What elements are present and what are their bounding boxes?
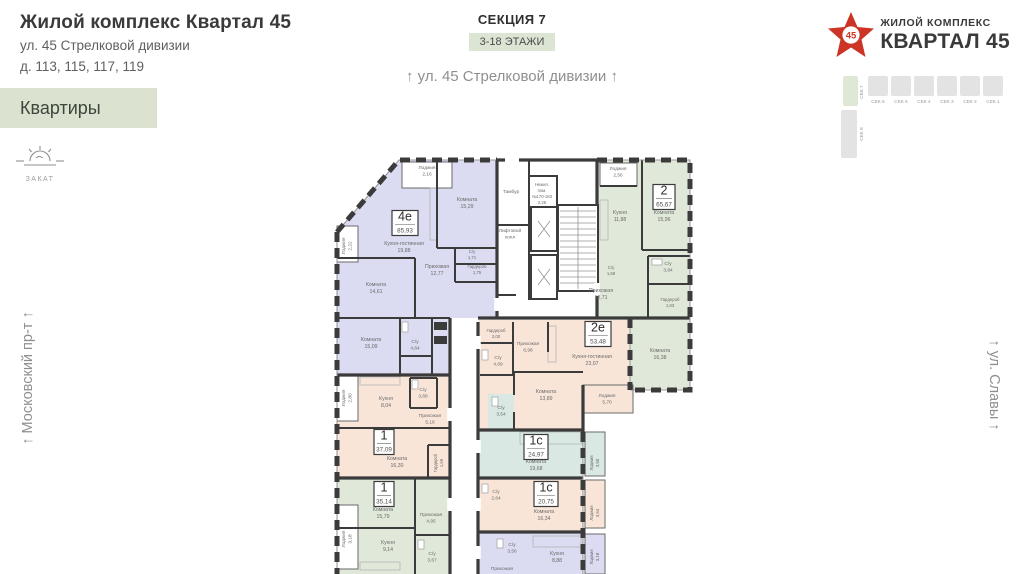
sunset-widget: ЗАКАТ [14,140,66,183]
minimap-section-current-label: СЕК 7 [859,85,865,99]
svg-text:65,67: 65,67 [656,202,672,209]
room-label: Кухня8,88 [550,551,564,564]
tab-flats[interactable]: Квартиры [0,88,157,128]
elevator-shaft [531,207,557,251]
svg-text:1: 1 [381,481,388,495]
room-label: Прихожая [491,566,514,572]
minimap-section[interactable]: СЕК 6 [868,76,888,105]
section-title: СЕКЦИЯ 7 [377,12,647,27]
logo-star-number: 45 [846,31,857,42]
svg-text:1с: 1с [529,434,542,448]
minimap-section-label: СЕК 1 [986,99,1000,105]
apartment-badge[interactable]: 135,14 [374,481,394,507]
tab-flats-label: Квартиры [20,98,101,119]
svg-text:2: 2 [661,184,668,198]
apartment-region-1s-20[interactable] [478,478,583,532]
floors-badge: 3-18 ЭТАЖИ [469,33,556,51]
svg-text:85,93: 85,93 [397,228,413,235]
svg-text:37,09: 37,09 [376,447,392,454]
svg-text:20,75: 20,75 [538,499,554,506]
minimap-section-label: СЕК 8 [859,127,865,141]
page-title: Жилой комплекс Квартал 45 [20,12,291,34]
svg-text:2е: 2е [591,321,605,335]
svg-text:4е: 4е [398,210,412,224]
room-label: Лифтовойхолл [499,227,522,241]
svg-text:35,14: 35,14 [376,499,392,506]
minimap-section-label: СЕК 4 [917,99,931,105]
section-header: СЕКЦИЯ 7 3-18 ЭТАЖИ [377,12,647,51]
apartment-badge[interactable]: 1с20,75 [534,481,558,507]
sunset-label: ЗАКАТ [14,176,66,183]
floorplan: Лоджия2,16Лоджия2,22Комната15,29Кухня-го… [330,150,710,574]
minimap-section-current[interactable]: СЕК 7 [843,76,865,106]
sunset-icon [14,140,66,170]
staircase [558,205,598,291]
minimap-section-label: СЕК 5 [894,99,908,105]
address-line-1: ул. 45 Стрелковой дивизии [20,37,291,55]
room-label: Тамбур [503,189,520,195]
logo[interactable]: 45 ЖИЛОЙ КОМПЛЕКС КВАРТАЛ 45 [826,10,1010,60]
minimap-section[interactable]: СЕК 8 [841,110,865,158]
logo-line1: ЖИЛОЙ КОМПЛЕКС [880,17,1010,29]
minimap-section[interactable]: СЕК 1 [983,76,1003,105]
svg-text:1с: 1с [539,481,552,495]
apartment-badge[interactable]: 1с24,97 [524,434,548,460]
room-label: Кухня11,88 [613,210,627,223]
minimap-section-label: СЕК 2 [963,99,977,105]
logo-line2: КВАРТАЛ 45 [880,30,1010,54]
room-label: Кухня8,04 [379,396,393,409]
apartment-badge[interactable]: 2е53,48 [585,321,611,347]
minimap-section[interactable]: СЕК 5 [891,76,911,105]
address-line-2: д. 113, 115, 117, 119 [20,58,291,76]
brand-block: Жилой комплекс Квартал 45 ул. 45 Стрелко… [20,12,291,75]
svg-text:24,97: 24,97 [528,452,544,459]
minimap-section[interactable]: СЕК 2 [960,76,980,105]
svg-text:53,48: 53,48 [590,339,606,346]
room-label: Кухня9,14 [381,540,395,553]
street-label-left: ↑ Московский пр-т ↑ [20,311,36,444]
minimap-section-label: СЕК 3 [940,99,954,105]
page: Жилой комплекс Квартал 45 ул. 45 Стрелко… [0,0,1024,574]
street-label-right: ↑ ул. Славы ↑ [986,339,1002,430]
apartment-badge[interactable]: 4е85,93 [392,210,418,236]
minimap-section[interactable]: СЕК 4 [914,76,934,105]
minimap-section[interactable]: СЕК 3 [937,76,957,105]
apartment-badge[interactable]: 137,09 [374,429,394,455]
minimap-section-label: СЕК 6 [871,99,885,105]
sections-minimap: СЕК 6СЕК 5СЕК 4СЕК 3СЕК 2СЕК 1 СЕК 7 СЕК… [838,70,1024,170]
svg-text:1: 1 [381,429,388,443]
logo-star-icon: 45 [826,10,876,60]
apartment-badge[interactable]: 265,67 [653,184,675,210]
street-label-top: ↑ ул. 45 Стрелковой дивизии ↑ [377,68,647,85]
elevator-shaft [531,255,557,299]
